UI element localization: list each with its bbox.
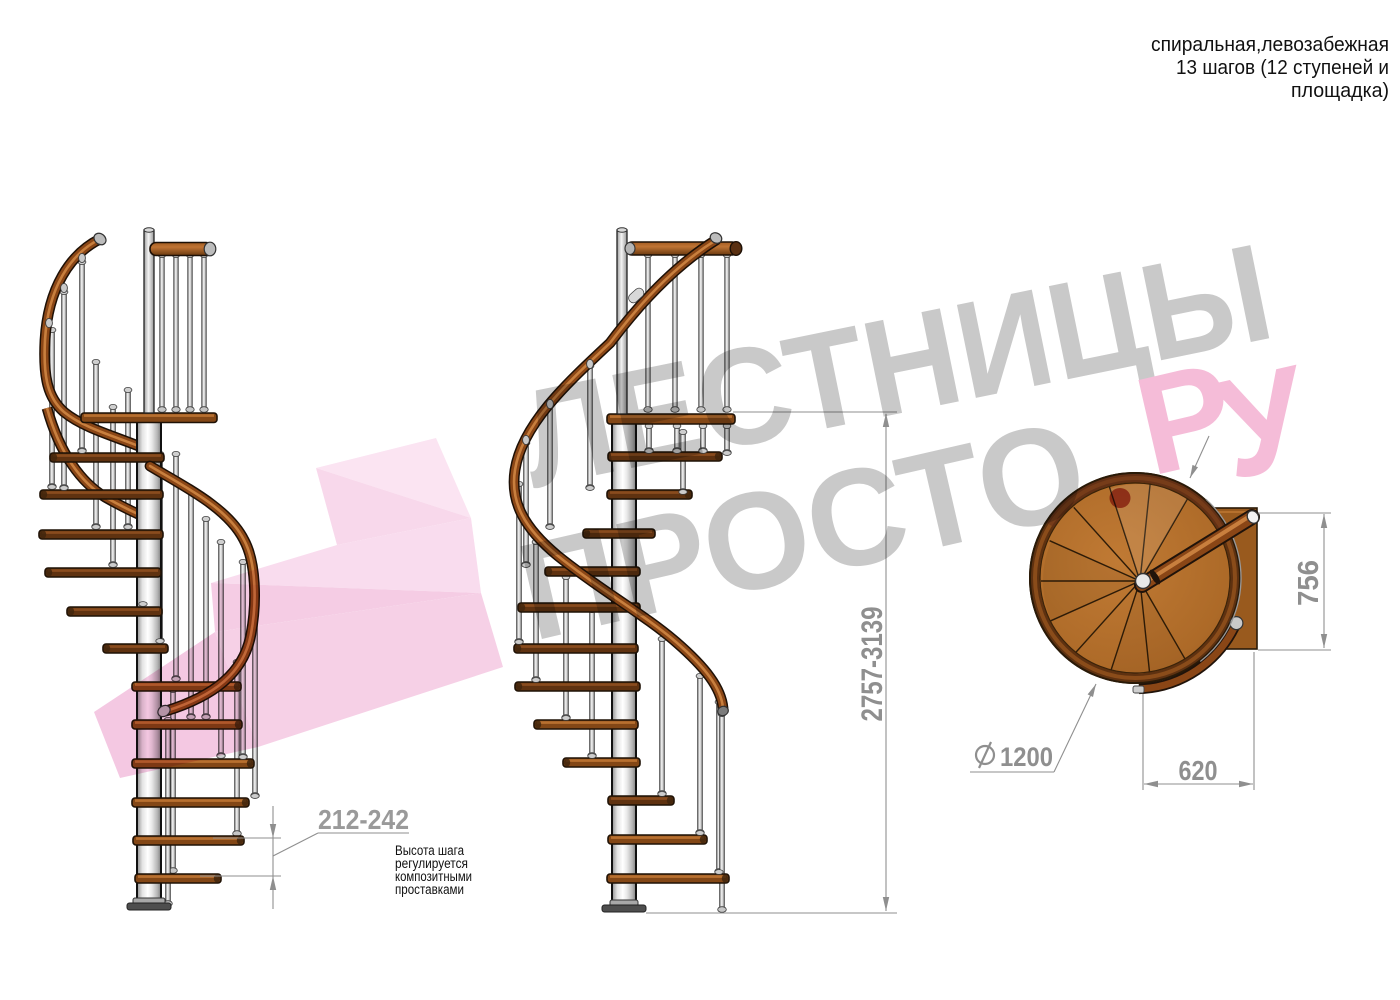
svg-text:620: 620 <box>1179 755 1218 786</box>
svg-text:1200: 1200 <box>1000 742 1053 772</box>
svg-text:проставками: проставками <box>395 882 464 897</box>
svg-text:13 шагов (12 ступеней и: 13 шагов (12 ступеней и <box>1176 56 1389 79</box>
svg-text:спиральная,левозабежная: спиральная,левозабежная <box>1151 33 1389 56</box>
svg-text:756: 756 <box>1293 560 1325 606</box>
svg-text:2757-3139: 2757-3139 <box>856 607 889 722</box>
svg-text:212-242: 212-242 <box>318 804 409 835</box>
svg-text:площадка): площадка) <box>1291 79 1389 102</box>
